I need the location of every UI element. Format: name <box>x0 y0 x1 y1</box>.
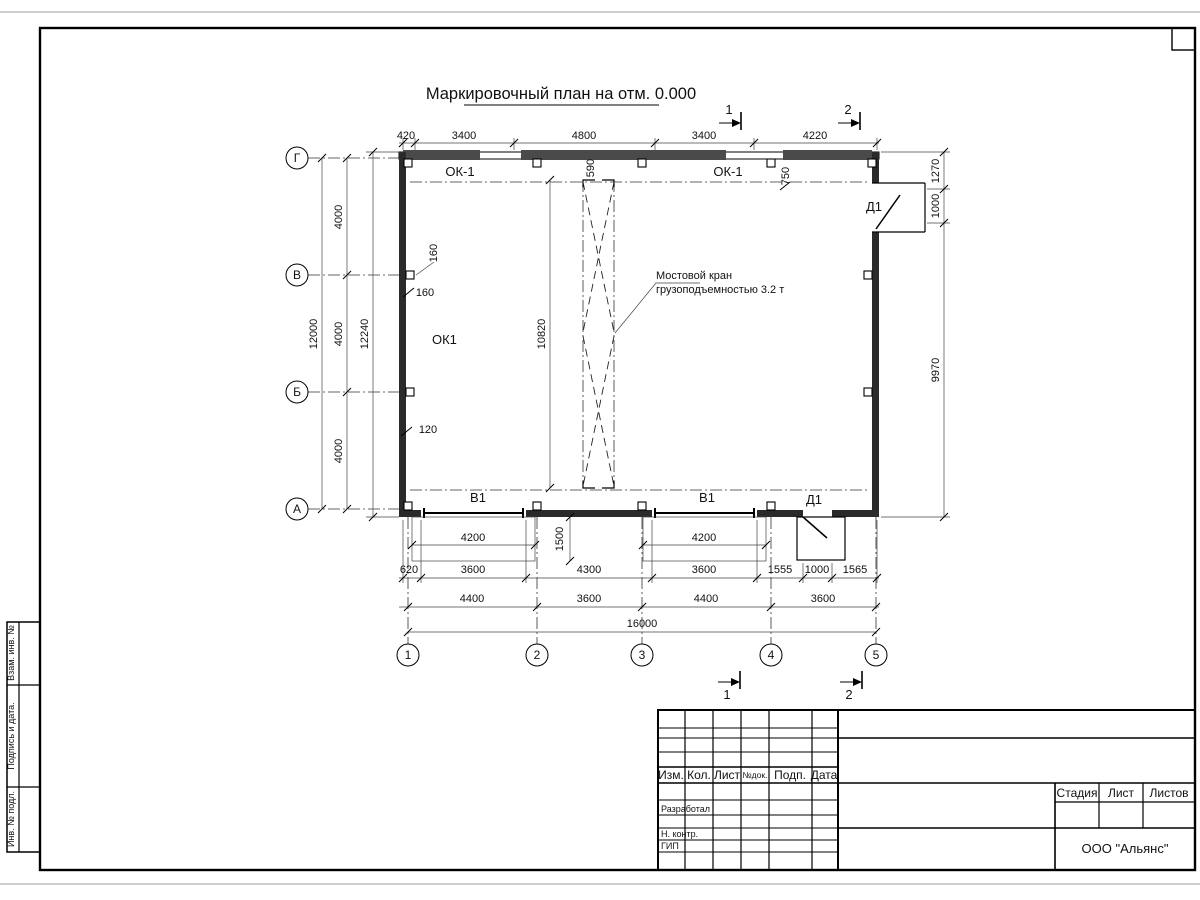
dim-left-seg-1: 4000 <box>333 322 345 346</box>
dims-bottom-row1: 620 3600 4300 3600 1555 1000 1565 <box>399 520 881 583</box>
bottom-wall-4 <box>832 510 879 517</box>
axis-row-b: Б <box>293 385 301 399</box>
label-ok1-left: ОК1 <box>432 332 457 347</box>
dim-b2-0: 4400 <box>460 593 484 605</box>
label-ok1-top-left: ОК-1 <box>445 164 474 179</box>
tb-data: Дата <box>811 768 838 782</box>
axis-row-g: Г <box>294 151 301 165</box>
plan-walls <box>399 150 879 517</box>
drawing-sheet: Взам. инв. № Подпись и дата. Инв. № подл… <box>0 0 1200 900</box>
tb-razrabotal: Разработал <box>661 804 710 814</box>
tb-izm: Изм. <box>658 768 684 782</box>
crane-annotation: Мостовой кран грузоподъемностью 3.2 т 10… <box>536 176 784 492</box>
dims-left: 12000 4000 4000 4000 12240 <box>308 148 399 521</box>
section-mark-1-bottom: 1 <box>723 687 730 702</box>
gates-doors <box>412 183 925 561</box>
section-marks-top: 1 2 <box>719 102 860 130</box>
dim-top-3: 3400 <box>692 130 716 142</box>
window-band-2 <box>521 150 726 160</box>
dim-b1-6: 1565 <box>843 564 867 576</box>
title-block: Изм. Кол. Лист №док. Подп. Дата Разработ… <box>658 710 1195 870</box>
dim-120: 120 <box>419 424 437 436</box>
door-leaf-bottom <box>803 517 827 538</box>
tb-nkontr: Н. контр. <box>661 829 698 839</box>
tb-kol: Кол. <box>687 768 711 782</box>
section-marks-bottom: 1 2 <box>718 671 862 702</box>
dim-total-16000: 16000 <box>627 618 658 630</box>
small-dims: 590 750 160 160 120 <box>401 159 792 436</box>
stamp-podpis-data: Подпись и дата. <box>6 702 16 769</box>
dim-590: 590 <box>585 159 597 177</box>
dim-gate-depth: 1500 <box>554 527 566 551</box>
dim-b1-4: 1555 <box>768 564 792 576</box>
dim-left-outer: 12240 <box>359 319 371 350</box>
crane-note-line2: грузоподъемностью 3.2 т <box>656 284 784 296</box>
crane-note-line1: Мостовой кран <box>656 270 732 282</box>
dims-top: 420 3400 4800 3400 4220 <box>397 130 881 150</box>
axis-row-a: А <box>293 502 301 516</box>
bottom-wall-3 <box>757 510 803 517</box>
stamp-vzam-inv: Взам. инв. № <box>6 625 16 681</box>
tb-gip: ГИП <box>661 841 679 851</box>
dim-b1-2: 4300 <box>577 564 601 576</box>
tb-stage: Стадия <box>1057 786 1098 800</box>
label-d1-right: Д1 <box>866 199 882 214</box>
dim-gate1: 4200 <box>461 532 485 544</box>
dims-gates: 4200 4200 1500 <box>408 513 770 565</box>
dim-right-2: 9970 <box>930 358 942 382</box>
dim-top-1: 3400 <box>452 130 476 142</box>
dim-b1-5: 1000 <box>805 564 829 576</box>
stamp-inv-podl: Инв. № подл. <box>6 791 16 847</box>
dim-b2-3: 3600 <box>811 593 835 605</box>
tb-company: ООО "Альянс" <box>1082 841 1169 856</box>
dim-top-4: 4220 <box>803 130 827 142</box>
dim-b1-3: 3600 <box>692 564 716 576</box>
bottom-wall-2 <box>526 510 652 517</box>
dim-left-seg-0: 4000 <box>333 205 345 229</box>
section-mark-2-top: 2 <box>844 102 851 117</box>
dim-top-0: 420 <box>397 130 415 142</box>
dim-top-2: 4800 <box>572 130 596 142</box>
bottom-wall-1 <box>399 510 421 517</box>
drawing-title: Маркировочный план на отм. 0.000 <box>426 85 696 105</box>
column-markers <box>404 159 876 510</box>
axis-col-5: 5 <box>873 648 880 662</box>
top-right-code-box <box>1172 28 1195 50</box>
dim-b1-0: 620 <box>400 564 418 576</box>
section-mark-1-top: 1 <box>725 102 732 117</box>
right-wall-lower <box>872 232 879 517</box>
section-mark-2-bottom: 2 <box>845 687 852 702</box>
tb-sheet: Лист <box>1108 786 1135 800</box>
dim-b2-2: 4400 <box>694 593 718 605</box>
cad-drawing: Взам. инв. № Подпись и дата. Инв. № подл… <box>0 0 1200 900</box>
crane-symbol <box>410 180 870 490</box>
label-v1-left: В1 <box>470 490 486 505</box>
dim-160b: 160 <box>416 287 434 299</box>
dim-crane-span: 10820 <box>536 319 548 350</box>
tb-podp: Подп. <box>774 768 806 782</box>
dims-bottom-row2: 4400 3600 4400 3600 <box>399 593 880 611</box>
label-v1-right: В1 <box>699 490 715 505</box>
window-band-1 <box>403 150 480 160</box>
room-labels: ОК-1 ОК-1 ОК1 Д1 Д1 В1 В1 <box>432 164 882 507</box>
tb-ndok: №док. <box>743 770 768 780</box>
door-porch <box>797 517 845 560</box>
axis-col-4: 4 <box>768 648 775 662</box>
left-stamp: Взам. инв. № Подпись и дата. Инв. № подл… <box>6 622 40 852</box>
axis-col-1: 1 <box>405 648 412 662</box>
left-wall <box>399 152 406 517</box>
dim-left-seg-2: 4000 <box>333 439 345 463</box>
dim-right-1: 1000 <box>930 194 942 218</box>
plan-title: Маркировочный план на отм. 0.000 <box>426 85 696 103</box>
tb-sheets: Листов <box>1150 786 1189 800</box>
axis-row-v: В <box>293 268 301 282</box>
tb-list: Лист <box>714 768 741 782</box>
label-d1-bottom: Д1 <box>806 492 822 507</box>
dims-right: 1270 1000 9970 <box>881 148 950 521</box>
axis-col-3: 3 <box>639 648 646 662</box>
dim-b1-1: 3600 <box>461 564 485 576</box>
dim-right-0: 1270 <box>930 159 942 183</box>
dim-b2-1: 3600 <box>577 593 601 605</box>
dim-160a: 160 <box>428 244 440 262</box>
window-band-3 <box>783 150 872 160</box>
label-ok1-top-right: ОК-1 <box>713 164 742 179</box>
axis-col-2: 2 <box>534 648 541 662</box>
dim-left-total: 12000 <box>308 319 320 350</box>
dim-gate2: 4200 <box>692 532 716 544</box>
